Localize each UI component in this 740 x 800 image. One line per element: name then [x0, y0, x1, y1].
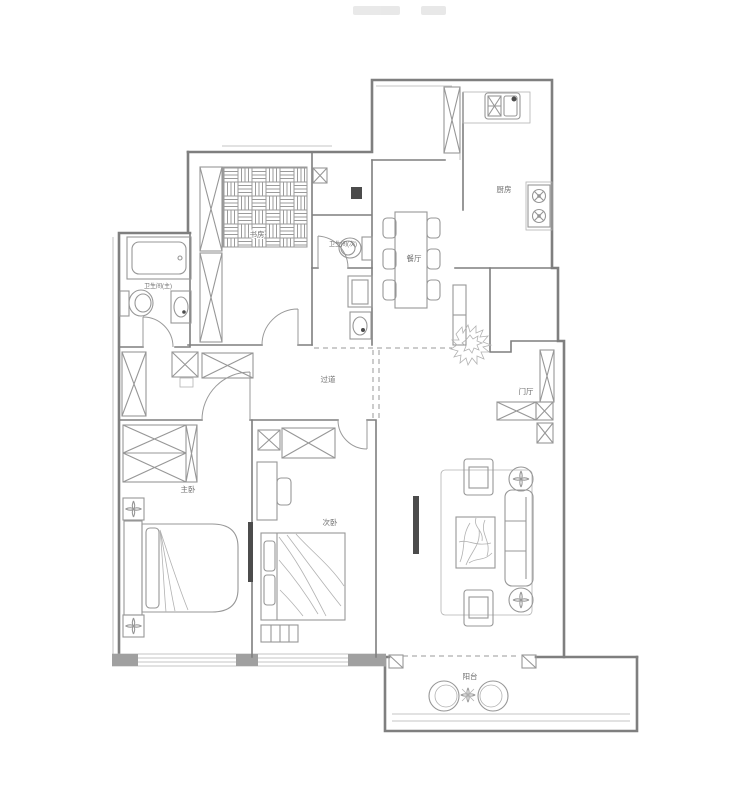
- second-bed: [261, 533, 345, 620]
- room-label-master-bedroom: 主卧: [181, 484, 196, 494]
- gas-stove: [526, 182, 552, 230]
- storage-box: [313, 168, 327, 183]
- room-living: [413, 459, 533, 626]
- master-wardrobe: [123, 425, 197, 482]
- toilet-second: [339, 237, 372, 260]
- watermark: [353, 6, 446, 15]
- second-wardrobe: [258, 428, 335, 458]
- flue-column: [444, 87, 460, 160]
- balcony-chair-left: [429, 681, 459, 711]
- balcony-chair-right: [478, 681, 508, 711]
- armchair-top: [464, 459, 493, 495]
- entry-column: [537, 423, 553, 443]
- side-table-bottom: [509, 588, 533, 612]
- room-label-second-bedroom: 次卧: [323, 517, 338, 527]
- balcony-pier-right: [522, 655, 536, 668]
- floor-plan: 书房 厨房 卫生间(主) 卫生间(次) 餐厅 过道 门厅 主卧 次卧 阳台: [0, 0, 740, 800]
- interior-walls: [119, 93, 558, 657]
- washbasin-main: [171, 291, 191, 323]
- shoe-cabinet: [497, 350, 554, 420]
- balcony-plant-icon: [461, 688, 475, 702]
- room-label-study: 书房: [250, 229, 265, 239]
- washing-machine: [348, 276, 372, 307]
- living-door-panel: [413, 496, 419, 554]
- master-door-panel: [248, 522, 253, 582]
- room-label-dining: 餐厅: [407, 254, 422, 263]
- room-label-corridor: 过道: [321, 374, 336, 384]
- rug: [441, 470, 532, 615]
- nightstand-bottom: [123, 615, 144, 637]
- desk: [257, 462, 291, 520]
- room-study: [200, 167, 307, 342]
- room-balcony: [389, 655, 536, 711]
- fridge: [453, 285, 466, 345]
- coffee-table: [456, 517, 495, 568]
- room-label-balcony: 阳台: [463, 671, 478, 681]
- room-label-kitchen: 厨房: [497, 184, 512, 194]
- room-bath-second: [313, 168, 372, 339]
- toilet-main: [120, 290, 153, 316]
- corridor-closets: [172, 352, 253, 387]
- door-arcs: [143, 236, 367, 449]
- plant-icon: [451, 325, 491, 365]
- kitchen-sink: [485, 93, 520, 119]
- balcony-pier-left: [389, 655, 403, 668]
- room-label-entry: 门厅: [519, 387, 534, 396]
- room-bath-main: [120, 237, 191, 323]
- study-wardrobe: [200, 167, 222, 342]
- room-kitchen: [444, 87, 552, 345]
- washbasin-second: [350, 312, 371, 339]
- exterior-walls: [112, 80, 637, 731]
- master-side-cabinet: [122, 352, 146, 416]
- floor-plan-page: 书房 厨房 卫生间(主) 卫生间(次) 餐厅 过道 门厅 主卧 次卧 阳台: [0, 0, 740, 800]
- armchair-bottom: [464, 590, 493, 626]
- room-label-bath-second: 卫生间(次): [329, 240, 357, 248]
- room-master-bedroom: [122, 352, 253, 637]
- master-bed: [124, 521, 238, 615]
- dresser: [261, 625, 298, 642]
- nightstand-top: [123, 498, 144, 520]
- tatami-floor-pattern: [223, 167, 307, 247]
- room-second-bedroom: [257, 428, 345, 642]
- sofa: [505, 490, 533, 586]
- water-heater: [351, 187, 362, 199]
- bathtub: [127, 237, 191, 279]
- side-table-top: [509, 467, 533, 491]
- room-labels: 书房 厨房 卫生间(主) 卫生间(次) 餐厅 过道 门厅 主卧 次卧 阳台: [144, 184, 534, 681]
- room-label-bath-main: 卫生间(主): [144, 282, 172, 290]
